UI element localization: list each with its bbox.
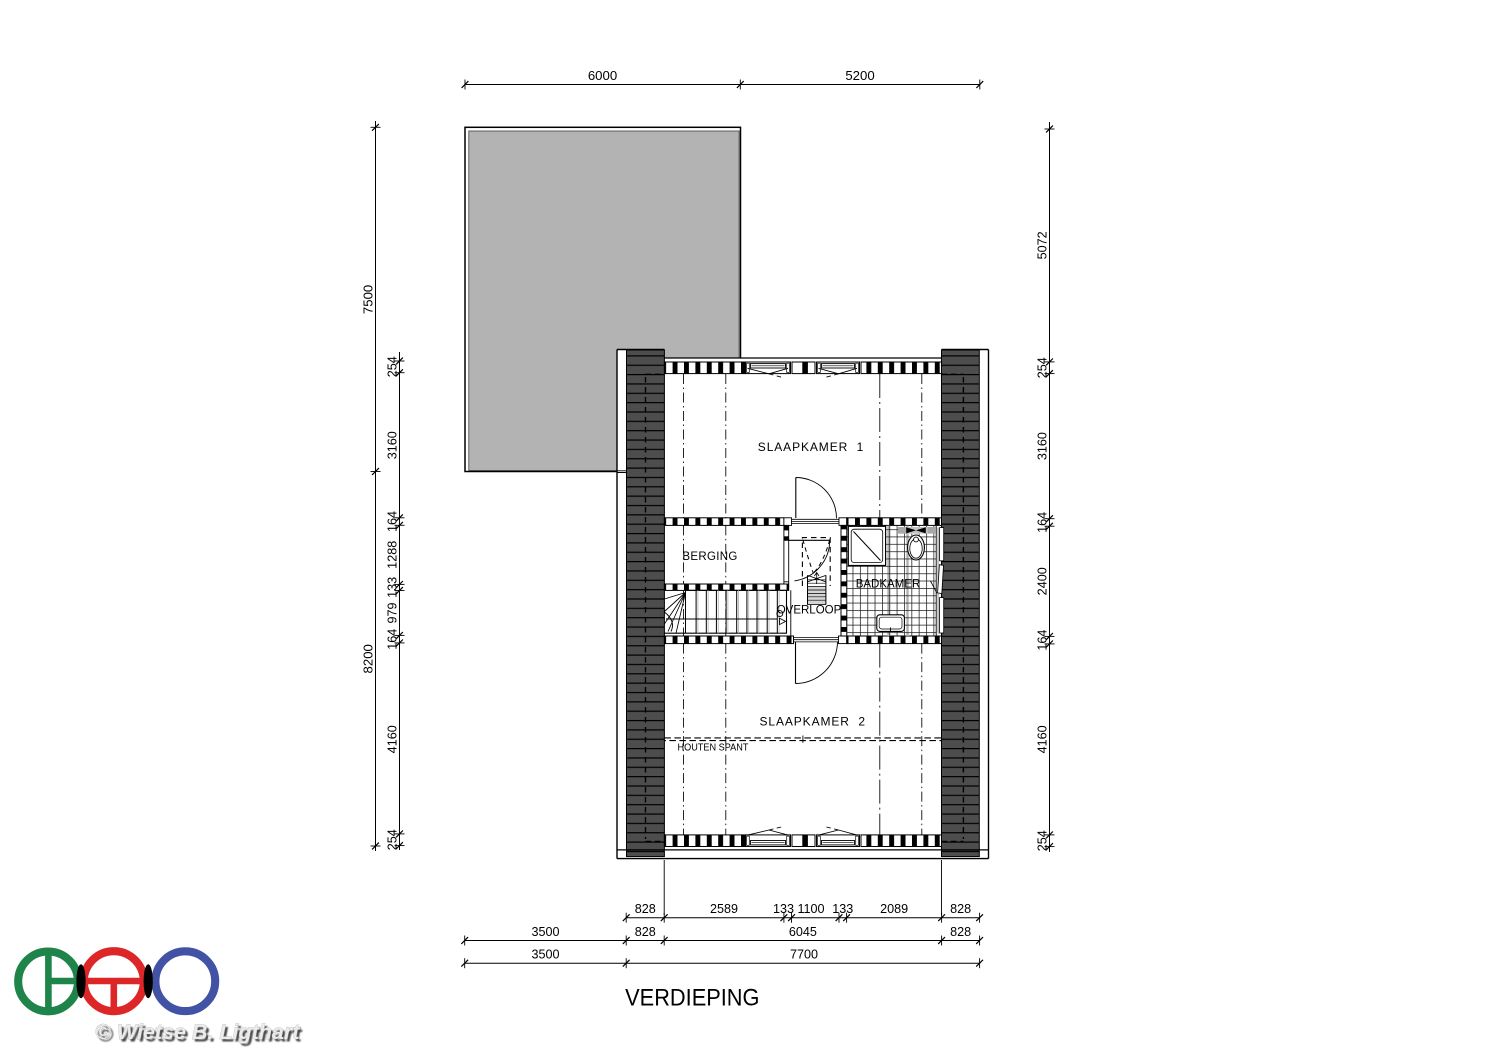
svg-text:1288: 1288 <box>386 541 400 569</box>
svg-text:133: 133 <box>832 902 853 916</box>
svg-text:979: 979 <box>386 602 400 623</box>
svg-text:7500: 7500 <box>361 285 376 314</box>
svg-text:133: 133 <box>773 902 794 916</box>
svg-text:© Wietse B. Ligthart: © Wietse B. Ligthart <box>95 1020 300 1044</box>
svg-text:828: 828 <box>635 925 656 939</box>
svg-text:HOUTEN SPANT: HOUTEN SPANT <box>678 742 749 754</box>
svg-text:VERDIEPING: VERDIEPING <box>625 983 759 1010</box>
svg-text:3500: 3500 <box>531 925 559 939</box>
svg-text:828: 828 <box>635 902 656 916</box>
svg-text:OVERLOOP: OVERLOOP <box>777 605 842 617</box>
svg-text:8200: 8200 <box>361 644 376 673</box>
svg-text:5072: 5072 <box>1036 231 1050 259</box>
svg-text:4160: 4160 <box>386 725 400 753</box>
svg-text:7700: 7700 <box>790 948 818 962</box>
svg-text:2089: 2089 <box>880 902 908 916</box>
svg-text:3160: 3160 <box>386 431 400 459</box>
svg-text:6000: 6000 <box>588 68 617 83</box>
svg-text:164: 164 <box>386 511 400 532</box>
svg-text:828: 828 <box>950 902 971 916</box>
svg-text:SLAAPKAMER 1: SLAAPKAMER 1 <box>758 440 864 454</box>
svg-text:254: 254 <box>1036 357 1050 378</box>
svg-text:133: 133 <box>386 577 400 598</box>
svg-text:3160: 3160 <box>1036 432 1050 460</box>
svg-text:254: 254 <box>386 829 400 850</box>
svg-text:1100: 1100 <box>797 902 824 916</box>
svg-text:2400: 2400 <box>1036 567 1050 595</box>
svg-text:4160: 4160 <box>1036 725 1050 753</box>
svg-text:2589: 2589 <box>710 902 738 916</box>
svg-text:254: 254 <box>386 356 400 377</box>
svg-text:164: 164 <box>1036 512 1050 533</box>
svg-text:SLAAPKAMER 2: SLAAPKAMER 2 <box>759 715 865 729</box>
svg-text:5200: 5200 <box>845 68 874 83</box>
svg-text:BADKAMER: BADKAMER <box>856 579 921 591</box>
svg-text:254: 254 <box>1036 830 1050 851</box>
svg-text:164: 164 <box>386 629 400 650</box>
svg-text:3500: 3500 <box>531 948 559 962</box>
svg-text:828: 828 <box>950 925 971 939</box>
svg-text:164: 164 <box>1036 630 1050 651</box>
svg-text:BERGING: BERGING <box>682 551 737 563</box>
svg-text:6045: 6045 <box>789 925 817 939</box>
